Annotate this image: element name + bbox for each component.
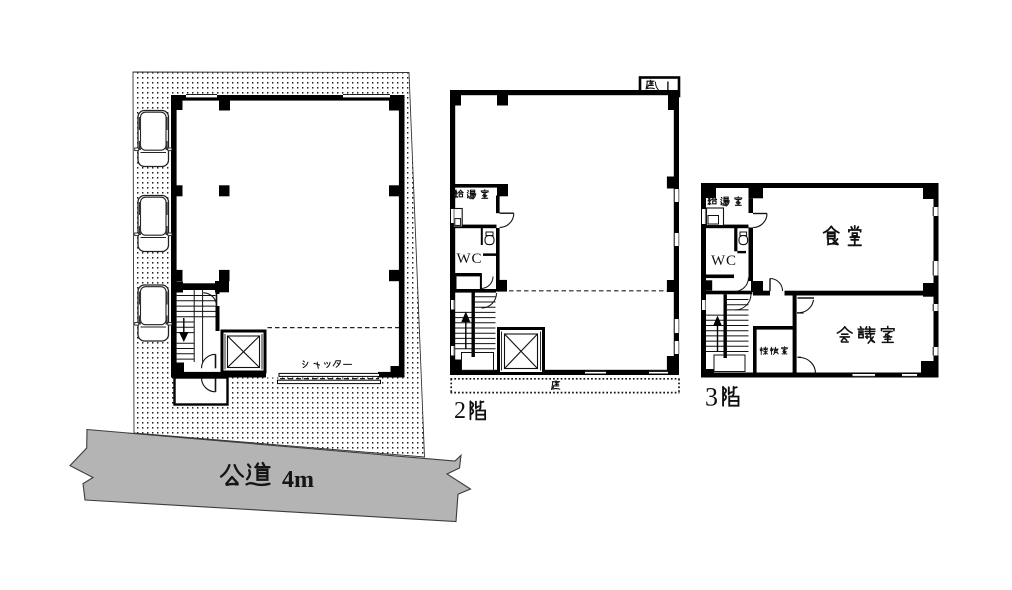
svg-text:WC: WC: [711, 253, 736, 269]
svg-text:2: 2: [454, 398, 466, 424]
svg-text:3: 3: [705, 383, 718, 412]
svg-text:4m: 4m: [282, 467, 314, 493]
svg-text:WC: WC: [457, 251, 482, 267]
